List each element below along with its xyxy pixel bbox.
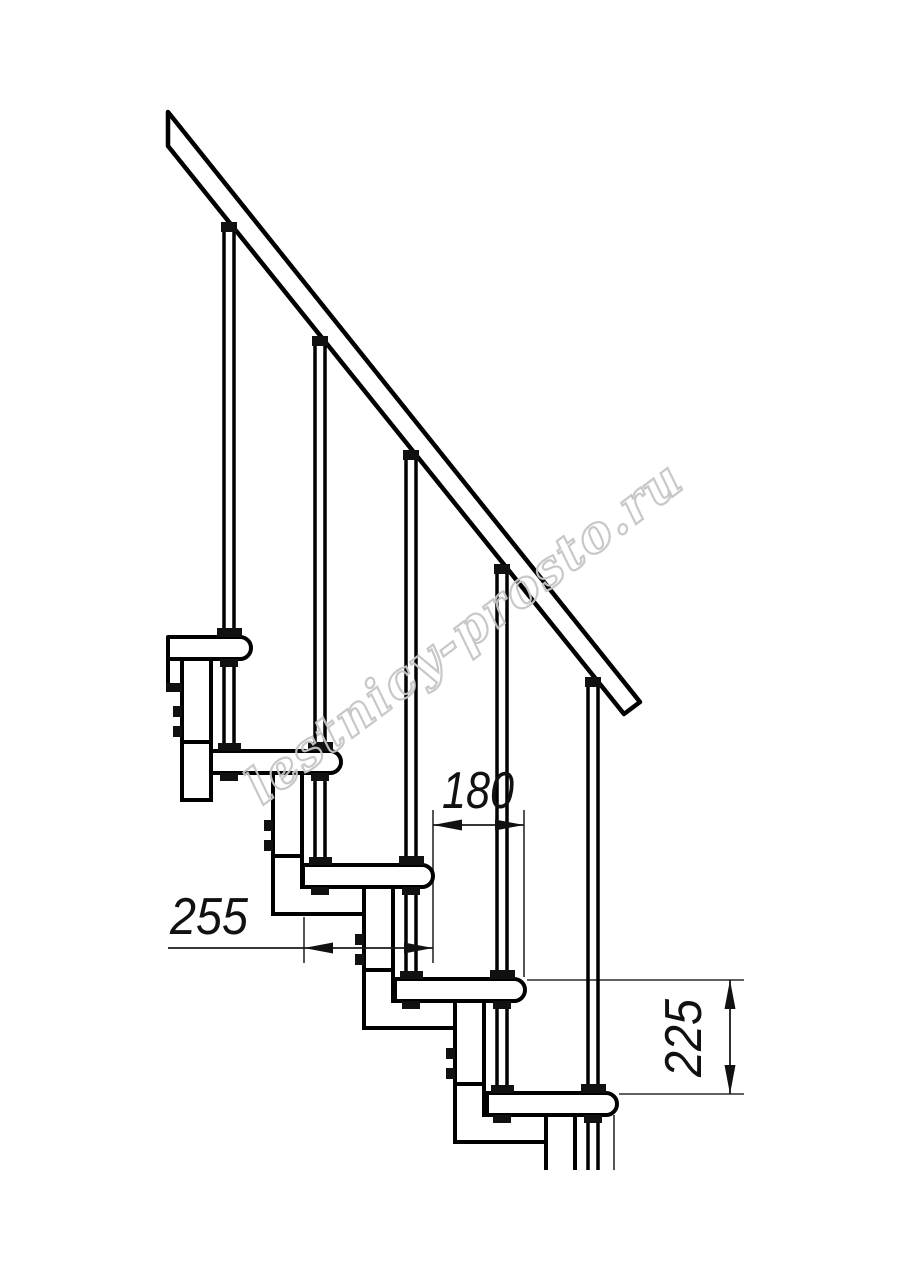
tread-5: [487, 1093, 617, 1115]
baluster-2-landing-nut: [311, 887, 329, 895]
module-3-bolt-icon: [355, 954, 364, 965]
baluster-4-nut: [493, 1001, 511, 1009]
baluster-1-nut: [220, 659, 238, 667]
baluster-2-top-collar: [312, 336, 328, 346]
baluster-1-top-collar: [221, 222, 237, 232]
dim-255-label: 255: [169, 888, 249, 946]
baluster-5-top-collar: [585, 677, 601, 687]
module-2-bolt-icon: [264, 840, 273, 851]
baluster-1-landing-nut: [220, 773, 238, 781]
tread-3: [303, 865, 433, 887]
module-1-bolt-icon: [173, 706, 182, 717]
module-1-bolt-icon: [173, 726, 182, 737]
staircase-technical-drawing: 180 255 225 lestnicy-prosto.ru: [0, 0, 914, 1280]
staircase-drawing-page: 180 255 225 lestnicy-prosto.ru: [0, 0, 914, 1280]
baluster-4-base-plate: [491, 1085, 514, 1093]
dim-225-label: 225: [655, 998, 713, 1078]
baluster-3-cap-collar: [399, 856, 424, 865]
baluster-1-base-plate: [218, 743, 241, 751]
dim-180-label: 180: [442, 762, 514, 820]
module-1-rear-bolt-icon: [166, 683, 182, 692]
baluster-3-landing-nut: [402, 1001, 420, 1009]
baluster-3-base-plate: [400, 971, 423, 979]
baluster-4-landing-nut: [493, 1115, 511, 1123]
module-1-body: [182, 659, 211, 800]
baluster-5-cap-collar: [581, 1084, 606, 1093]
module-4-bolt-icon: [446, 1068, 455, 1079]
baluster-5-nut: [584, 1115, 602, 1123]
module-2-bolt-icon: [264, 820, 273, 831]
tread-4: [395, 979, 525, 1001]
baluster-2-base-plate: [309, 857, 332, 865]
module-3-bolt-icon: [355, 934, 364, 945]
tread-1: [168, 637, 251, 659]
baluster-1-cap-collar: [217, 628, 242, 637]
baluster-4-cap-collar: [490, 970, 515, 979]
baluster-3-nut: [402, 887, 420, 895]
baluster-3-top-collar: [403, 450, 419, 460]
module-4-bolt-icon: [446, 1048, 455, 1059]
